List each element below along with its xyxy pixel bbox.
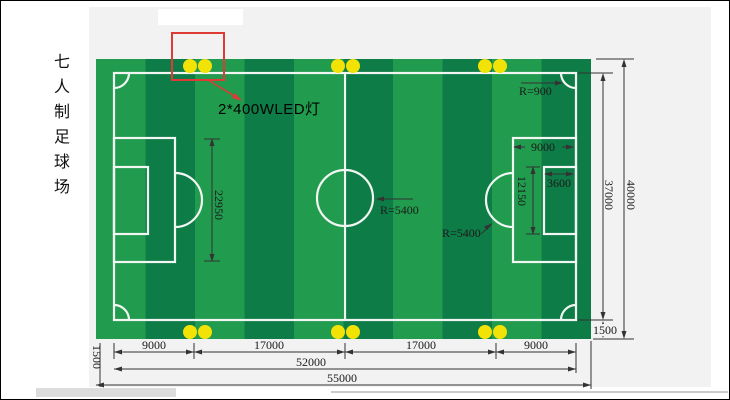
dim-label-margin-right: 1500 [592, 324, 618, 336]
led-light [478, 59, 492, 73]
dim-label-bottom-segment: 9000 [142, 339, 166, 351]
led-light [331, 325, 345, 339]
dim-label-goal-area-height: 12150 [516, 176, 528, 206]
diagram-canvas: 七人制足球场 2*400WLED灯 R=900 R=5400 R=5400 22… [0, 0, 730, 400]
page-title: 七人制足球场 [51, 53, 67, 203]
led-light [183, 325, 197, 339]
dim-label-penalty-area-width: 9000 [531, 141, 555, 153]
dim-label-total-length: 40000 [625, 180, 637, 210]
led-light [346, 325, 360, 339]
led-light [183, 59, 197, 73]
dim-label-field-width: 52000 [296, 356, 326, 368]
penalty-arc-radius-label: R=5400 [442, 227, 481, 239]
dim-label-field-length: 37000 [603, 180, 615, 210]
led-light [346, 59, 360, 73]
dim-label-total-width: 55000 [327, 372, 357, 384]
led-light [331, 59, 345, 73]
led-light [478, 325, 492, 339]
dim-label-bottom-segment: 17000 [254, 339, 284, 351]
led-light [198, 59, 212, 73]
led-light [198, 325, 212, 339]
led-annotation-label: 2*400WLED灯 [218, 102, 321, 117]
corner-radius-label: R=900 [519, 85, 552, 97]
dim-label-goal-area-width: 3600 [547, 177, 571, 189]
dim-label-bottom-segment: 17000 [406, 339, 436, 351]
dim-label-bottom-segment: 9000 [524, 339, 548, 351]
led-light [493, 59, 507, 73]
led-light [493, 325, 507, 339]
field-diagram [1, 1, 729, 399]
dim-label-penalty-area-height: 22950 [213, 190, 225, 220]
center-circle-radius-label: R=5400 [380, 204, 419, 216]
dim-label-margin-left: 1500 [91, 345, 103, 369]
